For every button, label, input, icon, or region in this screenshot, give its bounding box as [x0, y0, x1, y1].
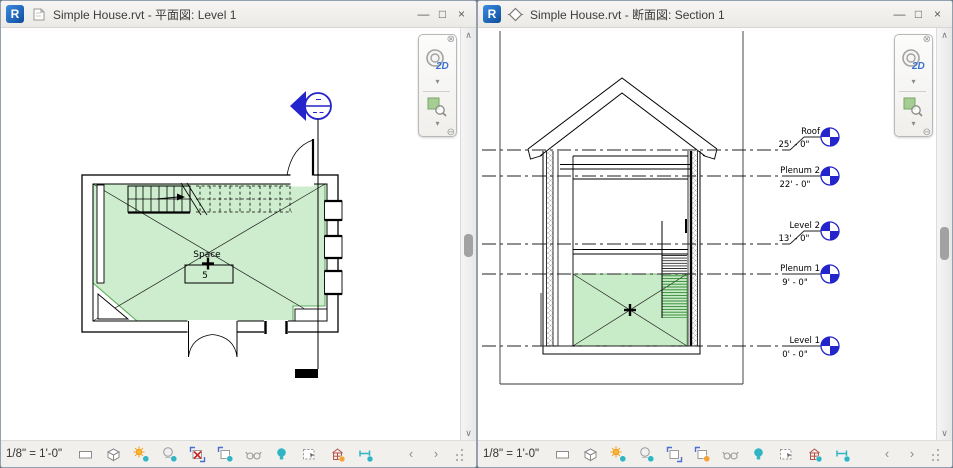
window-title: Simple House.rvt - 平面図: Level 1: [53, 6, 236, 23]
svg-text:5: 5: [202, 271, 208, 281]
titlebar-floor-plan[interactable]: R Simple House.rvt - 平面図: Level 1 — □ ×: [1, 1, 476, 28]
door-opening-plan[interactable]: [264, 320, 288, 334]
svg-text:0' - 0": 0' - 0": [782, 350, 808, 360]
scale-button[interactable]: 1/8" = 1'-0": [6, 448, 62, 460]
level-head-icon: [821, 222, 839, 240]
svg-text:Roof: Roof: [801, 127, 821, 137]
scroll-down-arrow[interactable]: ∨: [937, 426, 952, 440]
reveal-constraints-icon[interactable]: [357, 446, 374, 463]
minimize-button[interactable]: —: [414, 2, 433, 26]
zoom-icon[interactable]: [426, 96, 448, 118]
wheel-menu-caret[interactable]: ▾: [419, 77, 456, 86]
navbar-collapse-icon[interactable]: ⊖: [447, 127, 455, 138]
vertical-scrollbar[interactable]: ∧ ∨: [936, 28, 952, 440]
shadows-icon[interactable]: [638, 446, 655, 463]
revit-tiled-views: R Simple House.rvt - 平面図: Level 1 — □ ×: [0, 0, 953, 468]
navigation-bar[interactable]: ⊗ 2D ▾ ▾ ⊖: [894, 34, 933, 137]
visual-style-icon[interactable]: [105, 446, 122, 463]
wheel-2d-label: 2D: [436, 61, 449, 72]
temporary-hide-isolate-icon[interactable]: [245, 446, 262, 463]
show-crop-region-icon[interactable]: [217, 446, 234, 463]
navigation-bar[interactable]: ⊗ 2D ▾ ▾ ⊖: [418, 34, 457, 137]
reveal-hidden-elements-icon[interactable]: [750, 446, 767, 463]
section-view-icon: [507, 6, 524, 23]
reveal-hidden-elements-icon[interactable]: [273, 446, 290, 463]
view-control-bar: 1/8" = 1'-0" ‹ ›: [1, 440, 476, 467]
svg-text:Plenum 1: Plenum 1: [780, 264, 820, 274]
stair-section[interactable]: [663, 254, 688, 274]
level-head-icon: [821, 167, 839, 185]
navbar-collapse-icon[interactable]: ⊖: [923, 127, 931, 138]
reveal-constraints-icon[interactable]: [834, 446, 851, 463]
level-level-2[interactable]: Level 2 13' - 0": [482, 221, 839, 244]
temporary-hide-isolate-icon[interactable]: [722, 446, 739, 463]
drawing-canvas-section[interactable]: Roof 25' - 0" Plenum 2 22' - 0": [478, 28, 936, 440]
crop-view-icon[interactable]: [666, 446, 683, 463]
revit-logo-icon: R: [483, 5, 501, 23]
window-section: R Simple House.rvt - 断面図: Section 1 — □ …: [477, 0, 953, 468]
scroll-left-button[interactable]: ‹: [404, 443, 418, 465]
sun-path-icon[interactable]: [610, 446, 627, 463]
svg-text:25' - 0": 25' - 0": [779, 140, 810, 150]
resize-grip[interactable]: [930, 446, 947, 463]
scroll-up-arrow[interactable]: ∧: [937, 28, 952, 42]
level-head-icon: [821, 128, 839, 146]
close-button[interactable]: ×: [928, 2, 947, 26]
window-title: Simple House.rvt - 断面図: Section 1: [530, 6, 725, 23]
scroll-right-button[interactable]: ›: [905, 443, 919, 465]
svg-text:Level 1: Level 1: [789, 336, 820, 346]
level-roof[interactable]: Roof 25' - 0": [482, 127, 839, 150]
drawing-canvas-floor-plan[interactable]: Space 5 ⊗ 2D ▾: [1, 28, 460, 440]
detail-level-icon[interactable]: [554, 446, 571, 463]
crop-view-icon[interactable]: [189, 446, 206, 463]
scroll-up-arrow[interactable]: ∧: [461, 28, 476, 42]
detail-level-icon[interactable]: [77, 446, 94, 463]
navbar-close-icon[interactable]: ⊗: [923, 34, 931, 45]
shadows-icon[interactable]: [161, 446, 178, 463]
scroll-right-button[interactable]: ›: [429, 443, 443, 465]
floor-plan-drawing: Space 5: [1, 28, 460, 440]
svg-text:Plenum 2: Plenum 2: [780, 166, 820, 176]
visual-style-icon[interactable]: [582, 446, 599, 463]
level-plenum-2[interactable]: Plenum 2 22' - 0": [482, 166, 839, 190]
analytical-model-icon[interactable]: [329, 446, 346, 463]
titlebar-section[interactable]: R Simple House.rvt - 断面図: Section 1 — □ …: [478, 1, 952, 28]
svg-text:22' - 0": 22' - 0": [780, 180, 811, 190]
window-plan[interactable]: [97, 185, 104, 283]
analytical-model-icon[interactable]: [806, 446, 823, 463]
show-crop-region-icon[interactable]: [694, 446, 711, 463]
scroll-left-button[interactable]: ‹: [880, 443, 894, 465]
wheel-menu-caret[interactable]: ▾: [895, 77, 932, 86]
resize-grip[interactable]: [454, 446, 471, 463]
single-door-plan[interactable]: [287, 139, 314, 187]
svg-text:Level 2: Level 2: [789, 221, 820, 231]
double-door-plan[interactable]: [188, 320, 238, 357]
svg-text:9' - 0": 9' - 0": [782, 278, 808, 288]
scroll-down-arrow[interactable]: ∨: [461, 426, 476, 440]
scrollbar-thumb[interactable]: [940, 227, 949, 260]
floor-plan-view-icon: [30, 6, 47, 23]
casework-plan[interactable]: [295, 309, 327, 321]
minimize-button[interactable]: —: [890, 2, 909, 26]
sun-path-icon[interactable]: [133, 446, 150, 463]
scrollbar-thumb[interactable]: [464, 234, 473, 257]
window-floor-plan: R Simple House.rvt - 平面図: Level 1 — □ ×: [0, 0, 477, 468]
zoom-icon[interactable]: [902, 96, 924, 118]
scale-button[interactable]: 1/8" = 1'-0": [483, 448, 539, 460]
maximize-button[interactable]: □: [433, 2, 452, 26]
svg-text:13' - 0": 13' - 0": [779, 234, 810, 244]
wheel-2d-label: 2D: [912, 61, 925, 72]
navbar-close-icon[interactable]: ⊗: [447, 34, 455, 45]
temporary-view-properties-icon[interactable]: [301, 446, 318, 463]
section-drawing: Roof 25' - 0" Plenum 2 22' - 0": [478, 28, 936, 440]
level-head-icon: [821, 337, 839, 355]
maximize-button[interactable]: □: [909, 2, 928, 26]
temporary-view-properties-icon[interactable]: [778, 446, 795, 463]
vertical-scrollbar[interactable]: ∧ ∨: [460, 28, 476, 440]
view-control-bar: 1/8" = 1'-0" ‹ ›: [478, 440, 952, 467]
wall-niches: [325, 201, 343, 294]
close-button[interactable]: ×: [452, 2, 471, 26]
level-head-icon: [821, 265, 839, 283]
revit-logo-icon: R: [6, 5, 24, 23]
